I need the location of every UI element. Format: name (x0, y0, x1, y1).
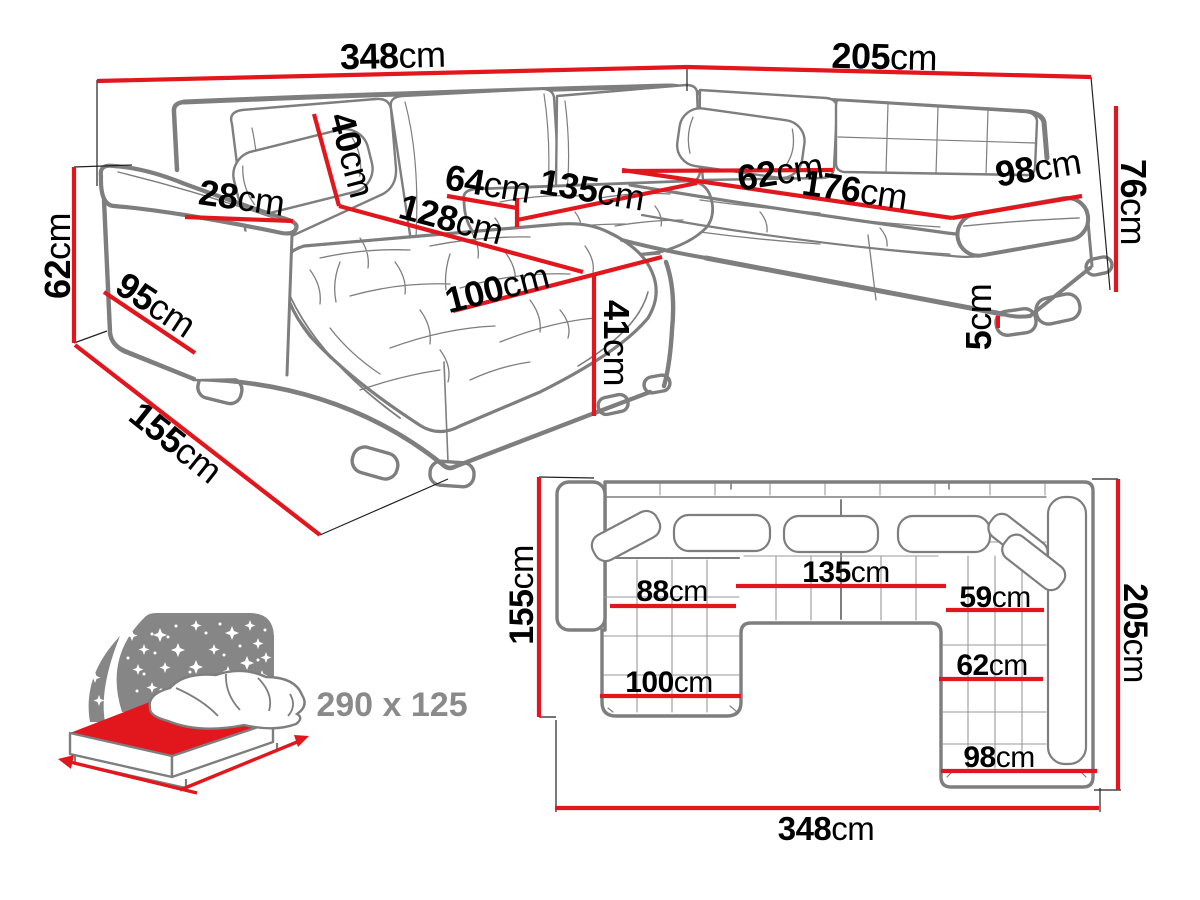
svg-text:88cm: 88cm (636, 575, 707, 608)
svg-text:41cm: 41cm (596, 300, 637, 386)
svg-text:155cm: 155cm (503, 545, 541, 645)
svg-text:205cm: 205cm (831, 35, 938, 79)
svg-text:5cm: 5cm (958, 284, 999, 351)
svg-text:62cm: 62cm (956, 649, 1027, 682)
svg-text:290 x 125: 290 x 125 (316, 686, 467, 724)
svg-text:100cm: 100cm (625, 666, 713, 699)
svg-text:98cm: 98cm (963, 741, 1034, 774)
svg-text:59cm: 59cm (959, 581, 1030, 614)
svg-text:76cm: 76cm (1113, 159, 1154, 245)
svg-text:135cm: 135cm (802, 556, 890, 589)
svg-text:62cm: 62cm (37, 213, 78, 299)
svg-text:348cm: 348cm (778, 810, 875, 847)
svg-text:205cm: 205cm (1116, 583, 1154, 683)
svg-text:348cm: 348cm (339, 34, 446, 78)
